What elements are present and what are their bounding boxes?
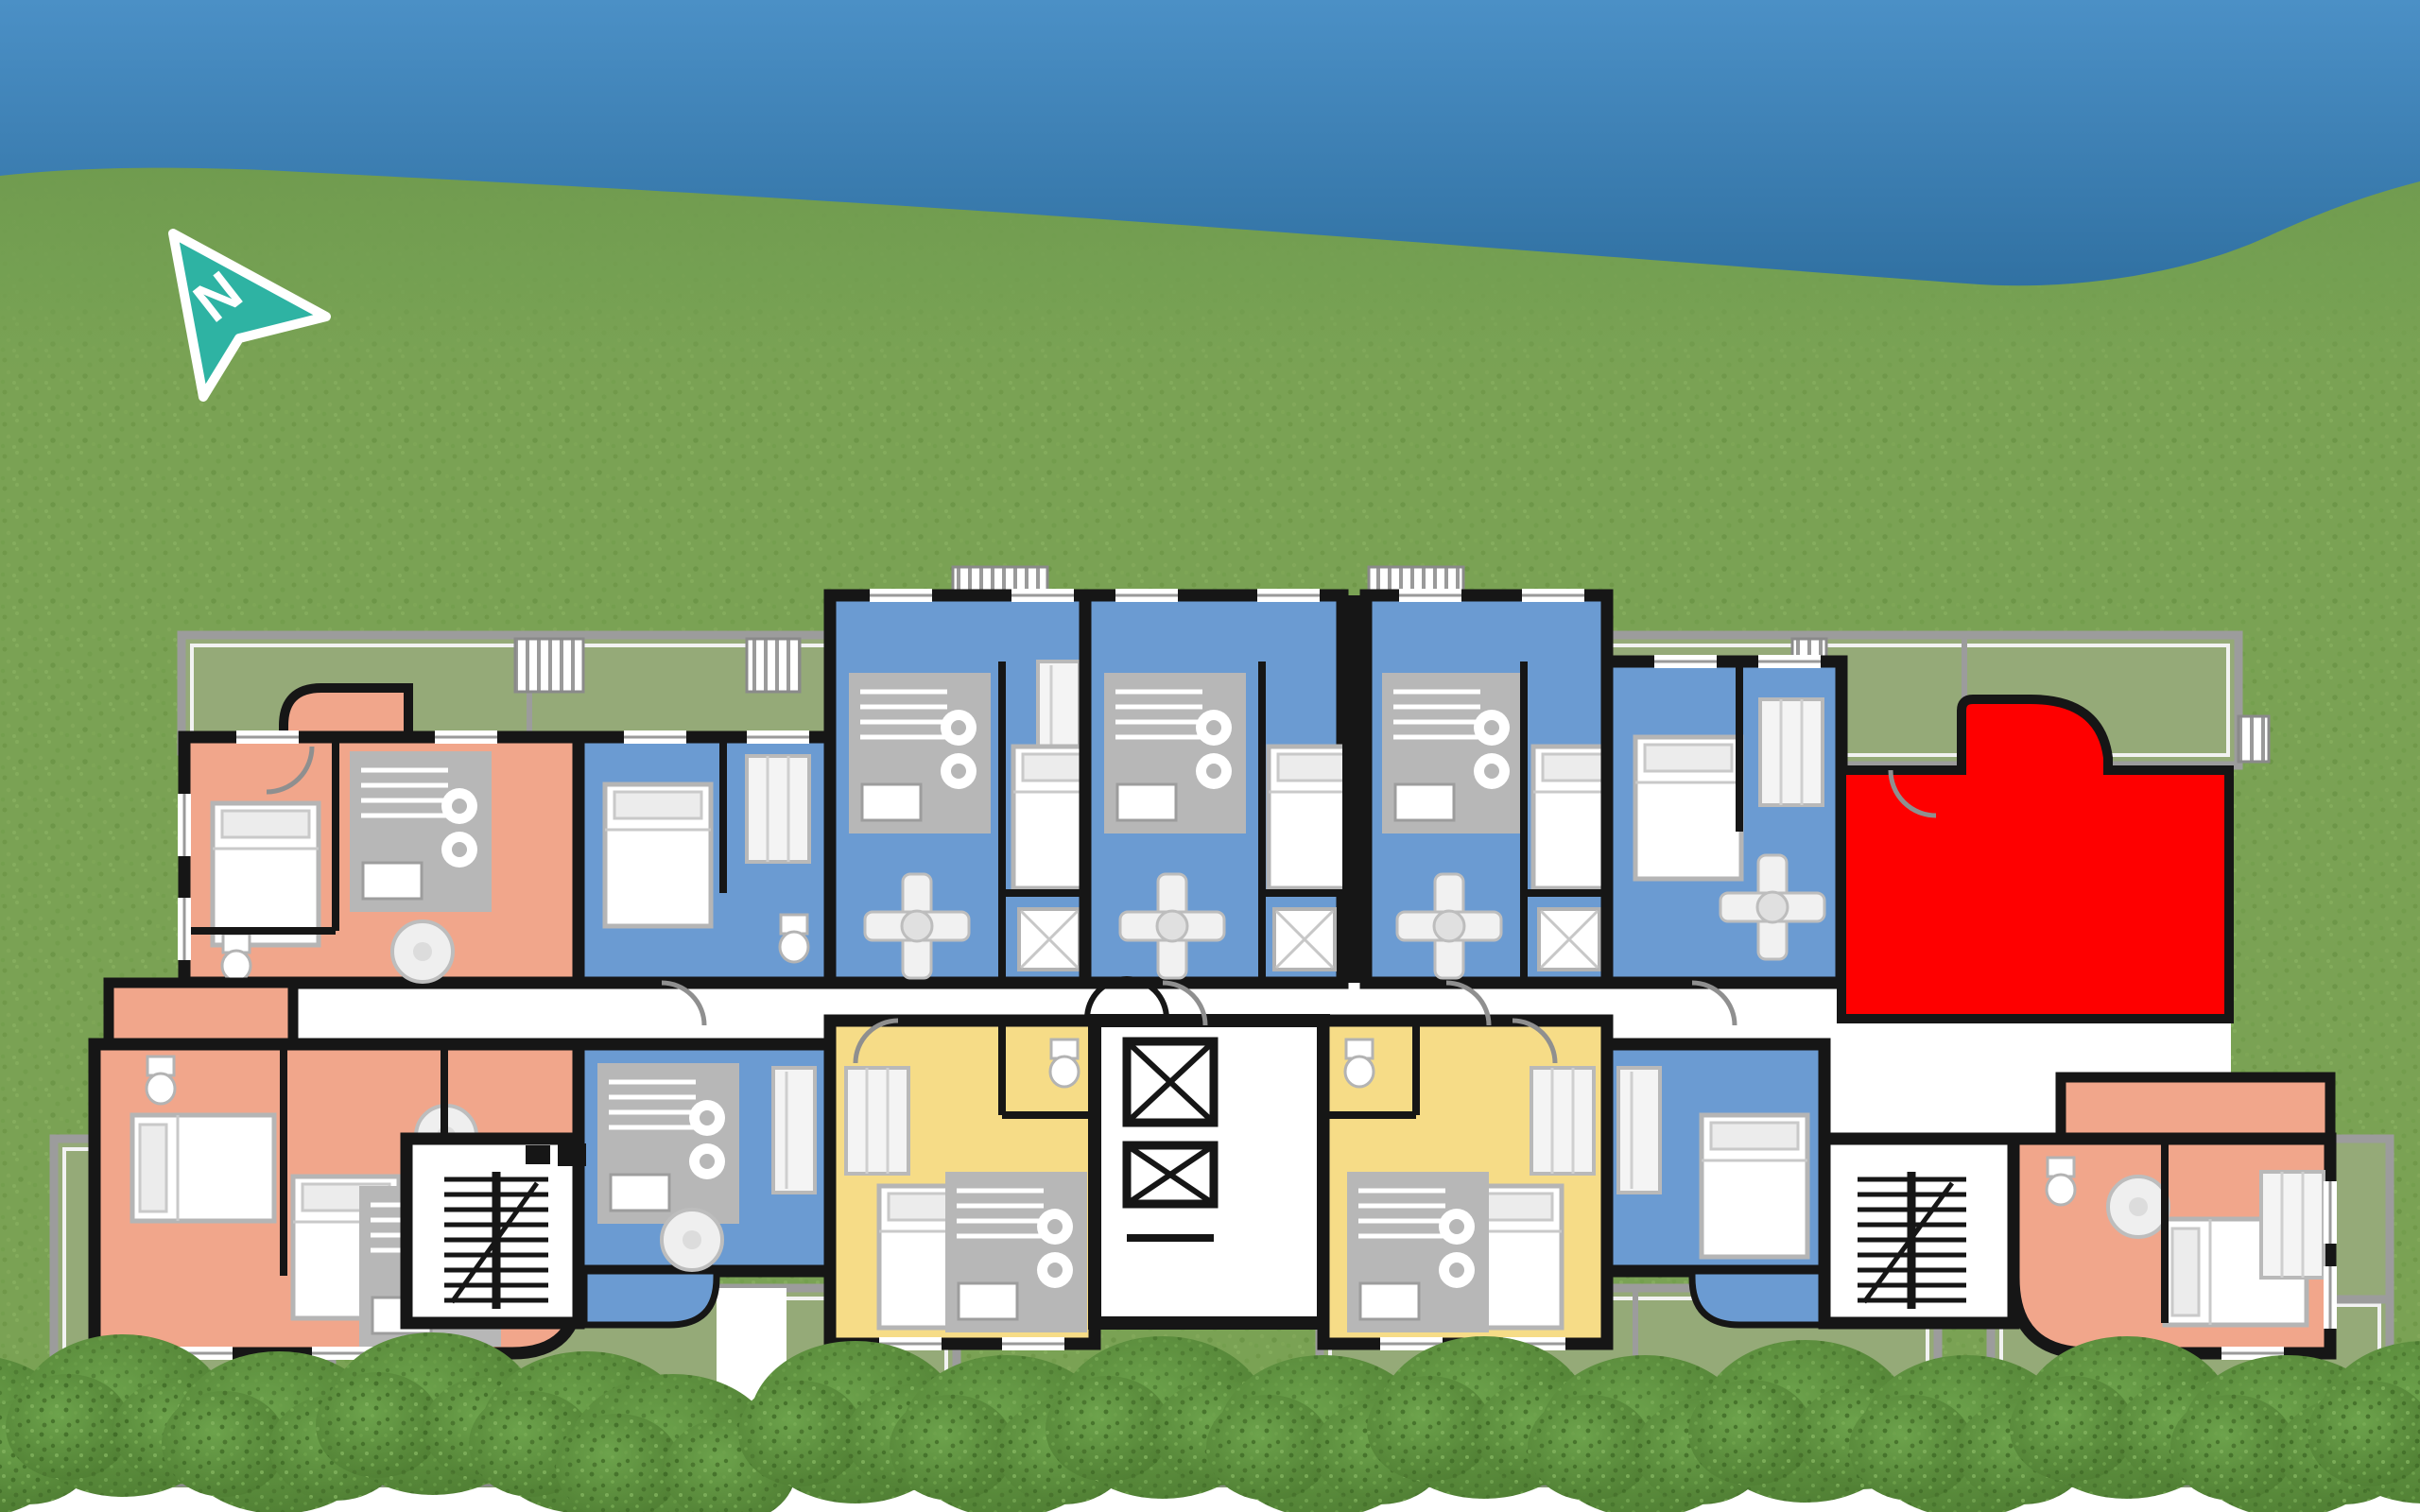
elevator-shaft-icon[interactable] (1127, 1041, 1214, 1123)
site-plan-page: N (0, 0, 2420, 1512)
curved-balcony (1692, 1271, 1824, 1325)
tech-box (558, 1143, 586, 1166)
unit-south-center-1-yellow[interactable] (830, 1021, 1095, 1344)
staircase-west (406, 1139, 586, 1323)
staircase-east (1824, 1139, 2014, 1323)
unit-north-center-2-blue[interactable] (1085, 595, 1374, 983)
grille-icon (2238, 716, 2269, 762)
site-plan-canvas: N (0, 0, 2420, 1512)
tech-box (526, 1145, 550, 1164)
unit-north-center-1-blue[interactable] (830, 595, 1119, 983)
grille-icon (515, 639, 583, 692)
elevator-shaft-icon[interactable] (1127, 1145, 1214, 1204)
hedge-row (0, 1332, 2420, 1512)
curved-balcony (584, 1271, 717, 1325)
grille-icon (747, 639, 800, 692)
unit-north-center-3-blue[interactable] (1366, 595, 1639, 983)
unit-north-west-2-blue[interactable] (579, 737, 830, 983)
unit-south-center-2-yellow[interactable] (1323, 1021, 1607, 1344)
unit-north-east-1-blue[interactable] (1607, 661, 1841, 983)
elevator-core (1095, 1021, 1323, 1323)
